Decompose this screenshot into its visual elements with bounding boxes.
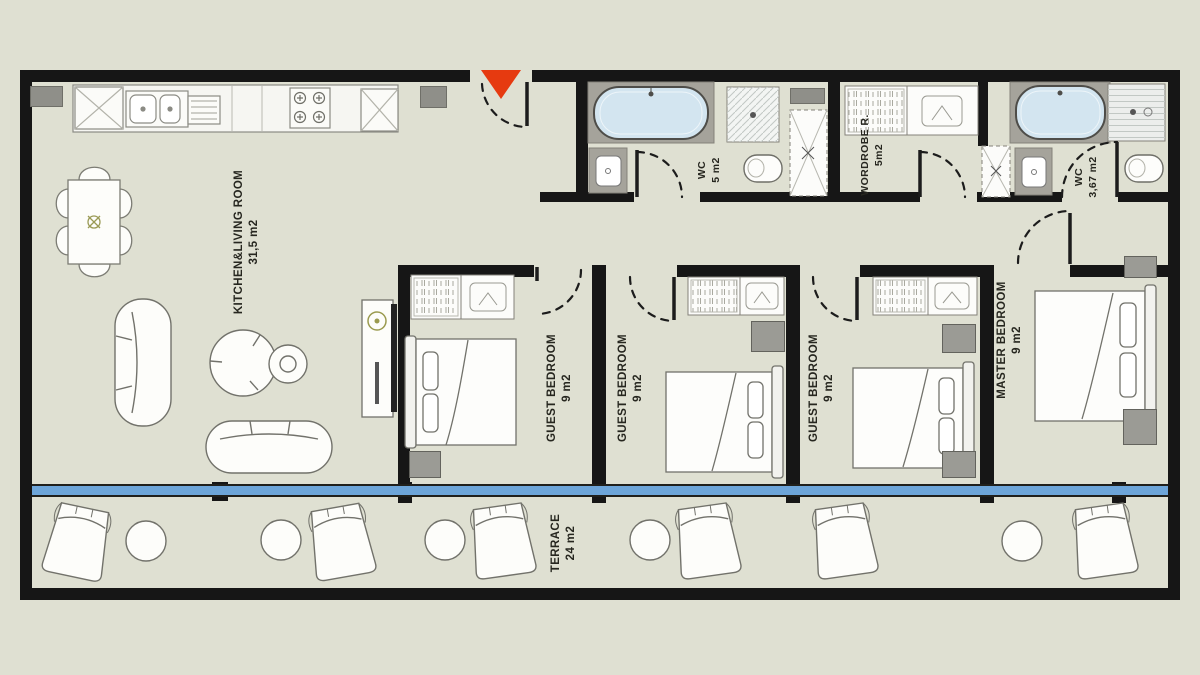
dining-chair xyxy=(119,189,132,218)
sofa-vertical xyxy=(115,299,171,426)
structural-column xyxy=(420,86,447,108)
wall-segment xyxy=(20,70,32,600)
label-guest2: GUEST BEDROOM 9 m2 xyxy=(613,278,649,498)
tv-unit xyxy=(362,300,397,417)
tv-screen xyxy=(391,304,397,412)
terrace-table xyxy=(261,520,301,560)
table-centerpiece xyxy=(88,216,100,228)
wall-segment xyxy=(828,82,840,194)
bed-master xyxy=(1035,285,1156,427)
washbasin xyxy=(1015,148,1052,195)
dining-chair xyxy=(56,189,69,218)
sofa-horizontal xyxy=(206,421,332,473)
wall-segment xyxy=(398,265,534,277)
dishwasher-icon xyxy=(361,89,398,131)
kitchen-sink xyxy=(126,91,188,127)
dining-chair xyxy=(79,167,110,180)
entrance-triangle xyxy=(481,70,521,99)
nightstand xyxy=(751,321,785,352)
lounge-chair xyxy=(672,502,741,580)
bathtub xyxy=(594,87,708,139)
wall-segment xyxy=(977,192,1062,202)
nightstand xyxy=(1124,256,1157,278)
floor-plan: KITCHEN&LIVING ROOM 31,5 m2 WC 5 m2 WORD… xyxy=(0,0,1200,675)
terrace-table xyxy=(630,520,670,560)
dining-set xyxy=(56,167,132,277)
lounge-chair xyxy=(305,502,376,581)
label-wardrobe: WORDROBE R. 5m2 xyxy=(855,45,891,265)
kitchen-counter xyxy=(73,85,398,132)
wall-segment xyxy=(1118,192,1180,202)
dining-chair xyxy=(119,226,132,255)
nightstand xyxy=(942,451,976,478)
toilet xyxy=(744,155,782,182)
stove-icon xyxy=(290,88,330,128)
shower-area xyxy=(1108,84,1165,141)
entrance-door xyxy=(482,82,527,127)
bedroom1-wardrobe xyxy=(411,275,514,319)
dining-chair xyxy=(56,226,69,255)
nightstand xyxy=(1123,409,1157,445)
terrace-glass-wall xyxy=(32,486,1168,495)
lounge-chair xyxy=(1069,502,1138,580)
lounge-chair xyxy=(809,502,878,580)
bed-guest1 xyxy=(405,336,516,448)
structural-column xyxy=(30,86,63,107)
label-guest3: GUEST BEDROOM 9 m2 xyxy=(804,278,840,498)
nightstand xyxy=(942,324,976,353)
bedroom3-wardrobe xyxy=(873,277,977,315)
side-table-round xyxy=(269,345,307,383)
bed-guest2 xyxy=(666,366,783,478)
bedroom2-wardrobe xyxy=(688,277,784,315)
dining-table xyxy=(68,180,120,264)
door xyxy=(637,150,682,197)
terrace-table xyxy=(126,521,166,561)
wall-segment xyxy=(20,588,1180,600)
drainboard xyxy=(188,96,220,124)
wall-segment xyxy=(576,82,588,194)
wall-segment xyxy=(592,265,606,490)
wall-segment xyxy=(540,192,634,202)
fridge-icon xyxy=(75,87,123,129)
toilet xyxy=(1125,155,1163,182)
terrace-table xyxy=(425,520,465,560)
dining-chair xyxy=(79,264,110,277)
structural-column xyxy=(790,88,825,104)
label-kitchen-living: KITCHEN&LIVING ROOM 31,5 m2 xyxy=(229,132,265,352)
label-wc2: WC 3,67 m2 xyxy=(1069,67,1105,287)
label-terrace: TERRACE 24 m2 xyxy=(546,433,582,653)
wall-segment xyxy=(860,265,982,277)
wall-segment xyxy=(1168,70,1180,600)
label-master: MASTER BEDROOM 9 m2 xyxy=(992,230,1028,450)
wall-segment xyxy=(786,265,800,490)
shower-cabin xyxy=(982,146,1010,197)
wall-segment xyxy=(20,70,470,82)
door xyxy=(920,150,965,197)
shower-stall xyxy=(727,87,779,142)
terrace-furniture xyxy=(41,501,1139,582)
shower-cabin xyxy=(790,110,827,196)
window-frame-line xyxy=(32,495,1168,497)
lounge-chair xyxy=(467,502,536,580)
washbasin xyxy=(589,148,627,193)
speaker-icon xyxy=(368,312,386,330)
lounge-chair xyxy=(41,501,114,582)
label-wc1: WC 5 m2 xyxy=(692,60,728,280)
nightstand xyxy=(409,451,441,478)
wall-segment xyxy=(978,82,988,146)
terrace-table xyxy=(1002,521,1042,561)
